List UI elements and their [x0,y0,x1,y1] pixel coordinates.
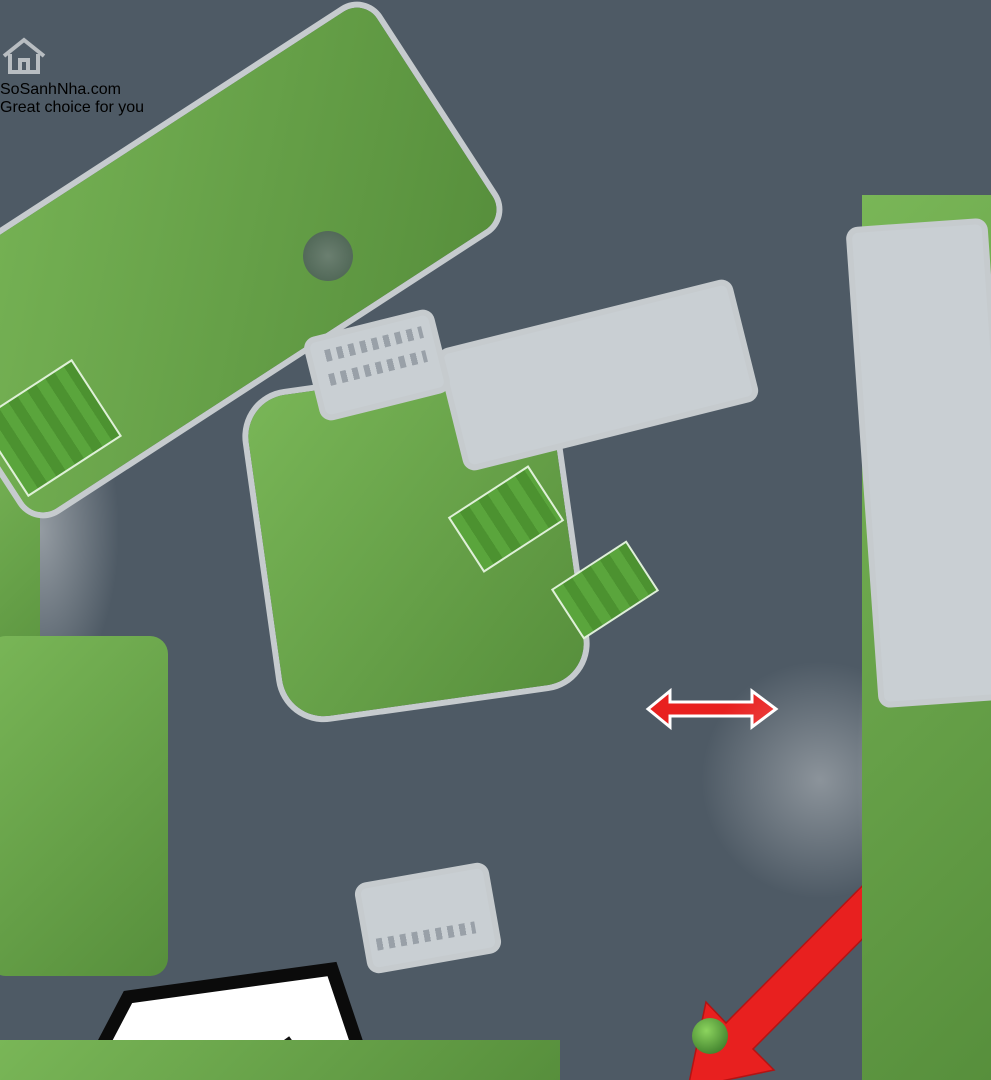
masterplan-map: SoSanhNha.com Great choice for you ĐẸP N… [0,0,991,1080]
crosswalk [646,674,670,700]
corner-highlight-box [0,0,44,36]
watermark-tagline: Great choice for you [0,99,991,117]
watermark-brand: SoSanhNha.com [0,81,991,99]
watermark: SoSanhNha.com Great choice for you [0,36,991,117]
bottom-green [0,1040,560,1080]
plaza-center [303,231,353,281]
crosswalk [797,968,864,1045]
boulevard-median [702,196,728,278]
crosswalk [732,284,756,310]
house-icon [0,36,48,76]
sports-park [0,636,168,976]
roundabout-palm [692,1018,728,1054]
corner-building [892,0,951,38]
